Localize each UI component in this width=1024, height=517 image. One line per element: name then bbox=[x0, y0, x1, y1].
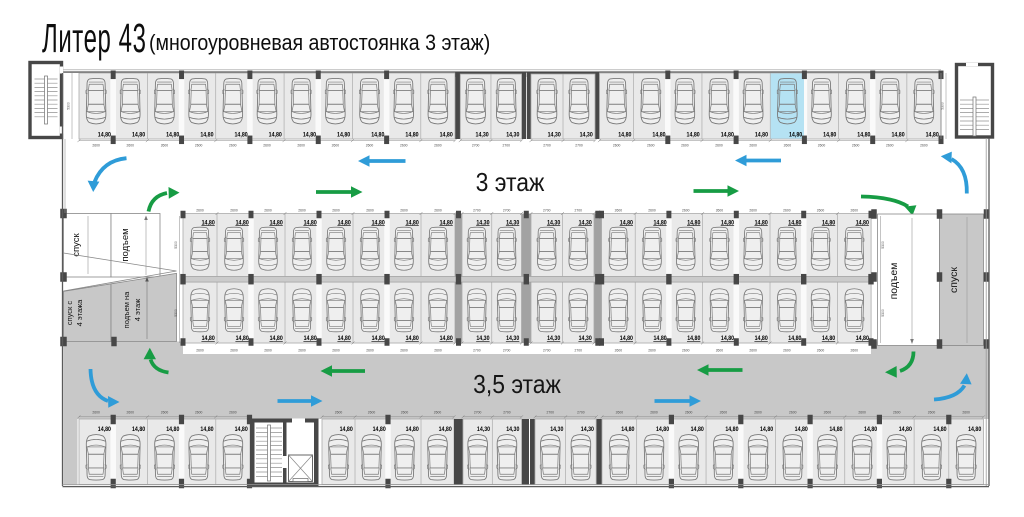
svg-text:2600: 2600 bbox=[720, 411, 728, 415]
svg-text:2600: 2600 bbox=[264, 208, 272, 212]
svg-text:2600: 2600 bbox=[400, 208, 408, 212]
svg-text:2600: 2600 bbox=[749, 143, 757, 147]
svg-text:14,30: 14,30 bbox=[476, 132, 490, 139]
svg-text:2700: 2700 bbox=[547, 411, 555, 415]
svg-text:14,80: 14,80 bbox=[755, 132, 769, 139]
svg-text:14,80: 14,80 bbox=[371, 132, 385, 139]
svg-text:2600: 2600 bbox=[616, 411, 624, 415]
svg-text:5300: 5300 bbox=[881, 241, 885, 249]
svg-text:14,80: 14,80 bbox=[795, 426, 809, 433]
svg-text:14,30: 14,30 bbox=[548, 132, 562, 139]
svg-text:5300: 5300 bbox=[174, 309, 178, 317]
svg-text:2600: 2600 bbox=[817, 208, 825, 212]
svg-text:14,80: 14,80 bbox=[340, 426, 354, 433]
svg-text:2600: 2600 bbox=[196, 348, 204, 352]
svg-text:2600: 2600 bbox=[434, 143, 442, 147]
svg-text:5300: 5300 bbox=[67, 102, 71, 110]
svg-text:14,80: 14,80 bbox=[235, 132, 249, 139]
svg-text:14,80: 14,80 bbox=[721, 132, 735, 139]
svg-text:14,30: 14,30 bbox=[477, 426, 491, 433]
svg-text:2600: 2600 bbox=[400, 348, 408, 352]
svg-text:2600: 2600 bbox=[681, 143, 689, 147]
svg-text:14,30: 14,30 bbox=[506, 132, 520, 139]
svg-text:2600: 2600 bbox=[196, 208, 204, 212]
svg-text:5300: 5300 bbox=[174, 241, 178, 249]
svg-text:2600: 2600 bbox=[297, 143, 305, 147]
svg-text:2600: 2600 bbox=[783, 348, 791, 352]
svg-text:2600: 2600 bbox=[332, 143, 340, 147]
svg-text:2600: 2600 bbox=[615, 208, 623, 212]
svg-text:14,80: 14,80 bbox=[166, 426, 180, 433]
svg-text:2700: 2700 bbox=[577, 411, 585, 415]
svg-text:14,80: 14,80 bbox=[200, 132, 214, 139]
svg-text:14,30: 14,30 bbox=[550, 426, 564, 433]
svg-text:спуск: спуск bbox=[948, 267, 960, 293]
svg-text:4 этаж: 4 этаж bbox=[133, 299, 142, 321]
svg-text:2600: 2600 bbox=[716, 208, 724, 212]
svg-text:14,80: 14,80 bbox=[652, 132, 666, 139]
svg-text:5300: 5300 bbox=[881, 309, 885, 317]
svg-text:14,80: 14,80 bbox=[303, 132, 317, 139]
svg-text:2600: 2600 bbox=[195, 411, 203, 415]
svg-text:2600: 2600 bbox=[264, 348, 272, 352]
svg-text:2600: 2600 bbox=[783, 208, 791, 212]
svg-text:2700: 2700 bbox=[575, 143, 583, 147]
svg-text:2600: 2600 bbox=[824, 411, 832, 415]
svg-text:14,80: 14,80 bbox=[968, 426, 982, 433]
svg-text:2700: 2700 bbox=[473, 208, 481, 212]
svg-text:14,80: 14,80 bbox=[269, 132, 283, 139]
svg-text:14,80: 14,80 bbox=[687, 132, 701, 139]
svg-text:14,80: 14,80 bbox=[98, 132, 112, 139]
svg-text:14,30: 14,30 bbox=[581, 426, 595, 433]
svg-text:2600: 2600 bbox=[230, 208, 238, 212]
svg-text:2600: 2600 bbox=[920, 143, 928, 147]
svg-text:2600: 2600 bbox=[851, 208, 859, 212]
svg-text:2600: 2600 bbox=[648, 208, 656, 212]
svg-text:14,80: 14,80 bbox=[373, 426, 387, 433]
svg-text:14,30: 14,30 bbox=[580, 132, 594, 139]
svg-text:14,80: 14,80 bbox=[618, 132, 632, 139]
svg-text:2600: 2600 bbox=[368, 411, 376, 415]
svg-text:14,80: 14,80 bbox=[98, 426, 112, 433]
svg-text:2600: 2600 bbox=[962, 411, 970, 415]
svg-text:2600: 2600 bbox=[851, 348, 859, 352]
svg-text:2700: 2700 bbox=[503, 411, 511, 415]
svg-text:14,30: 14,30 bbox=[506, 426, 520, 433]
svg-text:14,80: 14,80 bbox=[725, 426, 739, 433]
svg-text:2600: 2600 bbox=[648, 348, 656, 352]
svg-text:2600: 2600 bbox=[366, 348, 374, 352]
svg-text:14,80: 14,80 bbox=[857, 132, 871, 139]
svg-text:2600: 2600 bbox=[400, 143, 408, 147]
svg-text:14,80: 14,80 bbox=[406, 426, 420, 433]
svg-text:2600: 2600 bbox=[298, 208, 306, 212]
svg-text:3,5 этаж: 3,5 этаж bbox=[473, 371, 562, 399]
svg-text:подъем: подъем bbox=[120, 228, 131, 261]
svg-text:14,80: 14,80 bbox=[789, 132, 803, 139]
svg-text:2700: 2700 bbox=[473, 348, 481, 352]
svg-text:2600: 2600 bbox=[298, 348, 306, 352]
svg-text:2600: 2600 bbox=[749, 208, 757, 212]
svg-text:4 этажа: 4 этажа bbox=[75, 299, 84, 326]
svg-text:Литер 43: Литер 43 bbox=[42, 17, 147, 62]
svg-text:спуск: спуск bbox=[71, 232, 82, 256]
svg-text:2600: 2600 bbox=[366, 143, 374, 147]
svg-text:2600: 2600 bbox=[229, 411, 237, 415]
svg-text:2700: 2700 bbox=[474, 411, 482, 415]
svg-text:14,80: 14,80 bbox=[891, 132, 905, 139]
svg-text:2600: 2600 bbox=[335, 411, 343, 415]
svg-text:2600: 2600 bbox=[715, 143, 723, 147]
svg-text:14,80: 14,80 bbox=[933, 426, 947, 433]
svg-text:14,80: 14,80 bbox=[200, 426, 214, 433]
svg-text:14,80: 14,80 bbox=[760, 426, 774, 433]
svg-text:2600: 2600 bbox=[434, 208, 442, 212]
svg-text:2700: 2700 bbox=[575, 348, 583, 352]
svg-text:14,80: 14,80 bbox=[440, 132, 454, 139]
svg-text:2600: 2600 bbox=[893, 411, 901, 415]
svg-text:2700: 2700 bbox=[503, 143, 511, 147]
svg-text:14,80: 14,80 bbox=[235, 426, 249, 433]
svg-text:14,80: 14,80 bbox=[926, 132, 940, 139]
svg-text:2600: 2600 bbox=[789, 411, 797, 415]
svg-text:14,80: 14,80 bbox=[132, 426, 146, 433]
svg-text:2600: 2600 bbox=[928, 411, 936, 415]
svg-text:2700: 2700 bbox=[503, 208, 511, 212]
svg-text:14,80: 14,80 bbox=[337, 132, 351, 139]
svg-text:2600: 2600 bbox=[817, 348, 825, 352]
svg-text:3 этаж: 3 этаж bbox=[476, 169, 545, 197]
svg-text:2700: 2700 bbox=[543, 208, 551, 212]
svg-text:2600: 2600 bbox=[127, 411, 135, 415]
svg-text:2600: 2600 bbox=[332, 348, 340, 352]
svg-text:14,80: 14,80 bbox=[621, 426, 635, 433]
svg-text:2600: 2600 bbox=[886, 143, 894, 147]
svg-text:2700: 2700 bbox=[472, 143, 480, 147]
svg-text:14,80: 14,80 bbox=[166, 132, 180, 139]
svg-text:подъем на: подъем на bbox=[122, 291, 131, 329]
svg-text:14,80: 14,80 bbox=[829, 426, 843, 433]
svg-text:2600: 2600 bbox=[434, 348, 442, 352]
svg-text:2600: 2600 bbox=[229, 143, 237, 147]
svg-text:2600: 2600 bbox=[332, 208, 340, 212]
svg-text:2600: 2600 bbox=[613, 143, 621, 147]
svg-text:2600: 2600 bbox=[263, 143, 271, 147]
svg-text:2600: 2600 bbox=[650, 411, 658, 415]
svg-text:2700: 2700 bbox=[543, 348, 551, 352]
svg-text:2600: 2600 bbox=[161, 411, 169, 415]
svg-text:2700: 2700 bbox=[543, 143, 551, 147]
svg-text:14,80: 14,80 bbox=[439, 426, 453, 433]
svg-text:14,80: 14,80 bbox=[823, 132, 837, 139]
svg-text:2600: 2600 bbox=[127, 143, 135, 147]
svg-text:14,80: 14,80 bbox=[899, 426, 913, 433]
svg-text:2600: 2600 bbox=[195, 143, 203, 147]
svg-text:(многоуровневая автостоянка 3: (многоуровневая автостоянка 3 этаж) bbox=[149, 31, 490, 55]
svg-text:2600: 2600 bbox=[230, 348, 238, 352]
svg-text:2600: 2600 bbox=[647, 143, 655, 147]
svg-text:2600: 2600 bbox=[754, 411, 762, 415]
svg-text:2600: 2600 bbox=[92, 143, 100, 147]
svg-text:14,80: 14,80 bbox=[405, 132, 419, 139]
svg-text:2600: 2600 bbox=[92, 411, 100, 415]
svg-text:спуск с: спуск с bbox=[65, 301, 74, 326]
svg-text:2600: 2600 bbox=[401, 411, 409, 415]
svg-text:14,80: 14,80 bbox=[864, 426, 878, 433]
svg-text:2600: 2600 bbox=[434, 411, 442, 415]
svg-text:2600: 2600 bbox=[682, 208, 690, 212]
svg-text:2600: 2600 bbox=[784, 143, 792, 147]
svg-text:2600: 2600 bbox=[749, 348, 757, 352]
svg-text:14,80: 14,80 bbox=[656, 426, 670, 433]
svg-text:2600: 2600 bbox=[852, 143, 860, 147]
svg-text:14,80: 14,80 bbox=[691, 426, 705, 433]
svg-text:2600: 2600 bbox=[615, 348, 623, 352]
svg-text:14,80: 14,80 bbox=[132, 132, 146, 139]
svg-text:подъем: подъем bbox=[888, 263, 900, 300]
svg-text:2700: 2700 bbox=[575, 208, 583, 212]
svg-text:2600: 2600 bbox=[366, 208, 374, 212]
svg-text:2600: 2600 bbox=[682, 348, 690, 352]
svg-text:2600: 2600 bbox=[161, 143, 169, 147]
svg-text:2600: 2600 bbox=[685, 411, 693, 415]
svg-text:2700: 2700 bbox=[503, 348, 511, 352]
svg-text:2600: 2600 bbox=[818, 143, 826, 147]
svg-text:2600: 2600 bbox=[716, 348, 724, 352]
svg-text:2600: 2600 bbox=[858, 411, 866, 415]
